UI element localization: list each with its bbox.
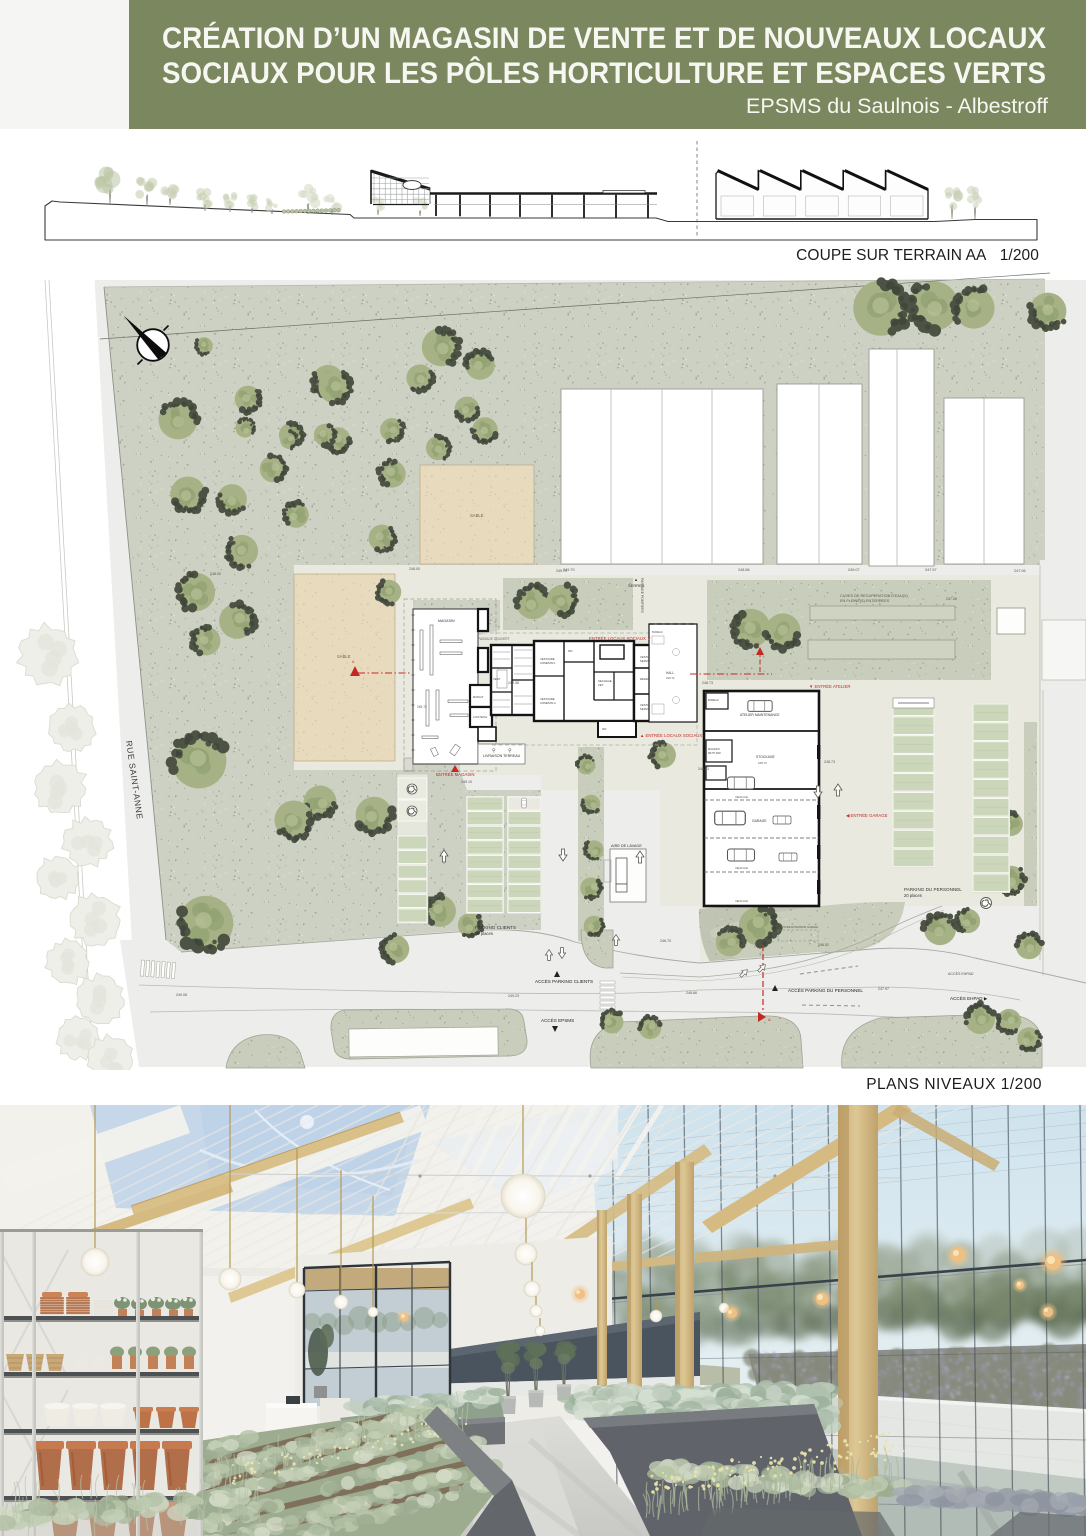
svg-text:249.07: 249.07	[848, 568, 860, 572]
svg-text:A: A	[768, 1017, 771, 1022]
svg-text:LOCTECH: LOCTECH	[473, 715, 487, 719]
svg-text:AIRE DE LAVAGE: AIRE DE LAVAGE	[611, 844, 642, 848]
svg-text:246.70: 246.70	[660, 939, 671, 943]
svg-text:SOCIAUX POUR LES PÔLES HORTICU: SOCIAUX POUR LES PÔLES HORTICULTURE ET E…	[162, 56, 1046, 90]
svg-text:ENTRÉE LOCAUX SOCIAUX ▼: ENTRÉE LOCAUX SOCIAUX ▼	[589, 636, 651, 641]
svg-text:COMMUN H: COMMUN H	[540, 701, 556, 705]
svg-text:20 places: 20 places	[904, 893, 922, 898]
svg-text:ACCÈS EPSMS: ACCÈS EPSMS	[541, 1017, 574, 1023]
svg-text:248.73: 248.73	[758, 761, 767, 765]
svg-text:ACCÈS EHPAD: ACCÈS EHPAD	[948, 971, 974, 976]
svg-text:WC: WC	[568, 649, 573, 653]
svg-text:246.52: 246.52	[818, 943, 829, 947]
svg-text:PASSAGE COUVERT: PASSAGE COUVERT	[478, 637, 509, 641]
svg-text:ENTRÉE MAGASIN: ENTRÉE MAGASIN	[436, 772, 474, 777]
svg-text:MAGASIN: MAGASIN	[438, 619, 455, 623]
svg-text:PASSAGE POMPIERS: PASSAGE POMPIERS	[640, 578, 644, 614]
svg-text:VET.: VET.	[598, 683, 604, 687]
svg-text:◀ ENTRÉE GARAGE: ◀ ENTRÉE GARAGE	[846, 813, 888, 818]
svg-text:▲: ▲	[634, 577, 638, 582]
svg-text:SABLE: SABLE	[337, 654, 351, 659]
svg-text:249.23: 249.23	[508, 994, 519, 998]
svg-text:STOCKAGE: STOCKAGE	[756, 755, 776, 759]
svg-text:248.00: 248.00	[409, 567, 420, 571]
svg-text:248.86: 248.86	[738, 568, 750, 572]
svg-text:COUPE SUR TERRAIN AA 1/200: COUPE SUR TERRAIN AA 1/200	[796, 247, 1039, 264]
svg-text:VEHICULE: VEHICULE	[735, 866, 748, 870]
svg-text:249.72: 249.72	[666, 676, 675, 680]
svg-text:▼ ENTRÉE ATELIER: ▼ ENTRÉE ATELIER	[809, 684, 850, 689]
svg-text:HALL: HALL	[666, 671, 674, 675]
svg-text:249.10: 249.10	[461, 780, 472, 784]
svg-text:ACCÈS EHPAD ▶: ACCÈS EHPAD ▶	[950, 995, 988, 1001]
svg-text:247.97: 247.97	[878, 987, 889, 991]
svg-text:ACCÈS PARKING CLIENTS: ACCÈS PARKING CLIENTS	[535, 978, 593, 984]
svg-text:248.66: 248.66	[686, 991, 697, 995]
svg-text:PARKING DU PERSONNEL: PARKING DU PERSONNEL	[904, 887, 962, 892]
svg-text:PARKING CLIENTS: PARKING CLIENTS	[475, 925, 516, 930]
svg-text:VEST: VEST	[493, 677, 501, 681]
svg-text:LIVRAISON TERREAU: LIVRAISON TERREAU	[483, 754, 521, 758]
svg-text:RANGT: RANGT	[473, 695, 484, 699]
svg-text:⚲: ⚲	[508, 748, 512, 754]
svg-text:248.73: 248.73	[698, 767, 709, 771]
svg-text:CRÉATION D’UN MAGASIN DE VENTE: CRÉATION D’UN MAGASIN DE VENTE ET DE NOU…	[162, 21, 1046, 55]
svg-text:248.58: 248.58	[508, 681, 519, 685]
svg-text:248.73: 248.73	[702, 681, 713, 685]
svg-text:PETIT MAT.: PETIT MAT.	[708, 752, 722, 755]
svg-text:⚲: ⚲	[492, 748, 496, 754]
svg-text:VEHICULE: VEHICULE	[735, 795, 748, 799]
svg-text:VEHICULE: VEHICULE	[735, 899, 748, 903]
svg-text:249.70: 249.70	[556, 569, 567, 573]
svg-text:▲ ENTRÉE LOCAUX SOCIAUX: ▲ ENTRÉE LOCAUX SOCIAUX	[640, 733, 702, 738]
svg-text:MAGASIN: MAGASIN	[708, 748, 720, 751]
svg-text:249.08: 249.08	[176, 993, 187, 997]
svg-text:PLANS NIVEAUX 1/200: PLANS NIVEAUX 1/200	[866, 1076, 1042, 1093]
svg-text:BUREAU: BUREAU	[652, 630, 663, 634]
svg-text:CUVES DE RECUPERATION D'EAU(X): CUVES DE RECUPERATION D'EAU(X)	[840, 594, 908, 598]
svg-text:SABLE: SABLE	[470, 513, 484, 518]
svg-text:ATELIER MAINTENANCE: ATELIER MAINTENANCE	[740, 713, 780, 717]
svg-text:WC: WC	[602, 727, 607, 731]
svg-text:247.06: 247.06	[1014, 569, 1026, 573]
svg-text:COMMUN F: COMMUN F	[540, 661, 556, 665]
svg-text:20 places: 20 places	[475, 931, 493, 936]
svg-text:BUREAU: BUREAU	[708, 698, 719, 702]
svg-text:248.73: 248.73	[824, 760, 835, 764]
svg-text:GARAGE: GARAGE	[752, 819, 767, 823]
svg-text:248.00: 248.00	[210, 572, 221, 576]
svg-text:FUTURE EXTENSION GARAGE: FUTURE EXTENSION GARAGE	[780, 925, 818, 929]
svg-text:247.97: 247.97	[925, 568, 937, 572]
svg-text:EN PLEINE(S) ENTERREES: EN PLEINE(S) ENTERREES	[840, 599, 890, 603]
svg-text:ACCÈS PARKING DU PERSONNEL: ACCÈS PARKING DU PERSONNEL	[788, 987, 863, 993]
svg-text:247.06: 247.06	[946, 597, 957, 601]
svg-text:249.72: 249.72	[417, 705, 427, 709]
svg-text:EPSMS du Saulnois - Albestroff: EPSMS du Saulnois - Albestroff	[746, 94, 1048, 118]
